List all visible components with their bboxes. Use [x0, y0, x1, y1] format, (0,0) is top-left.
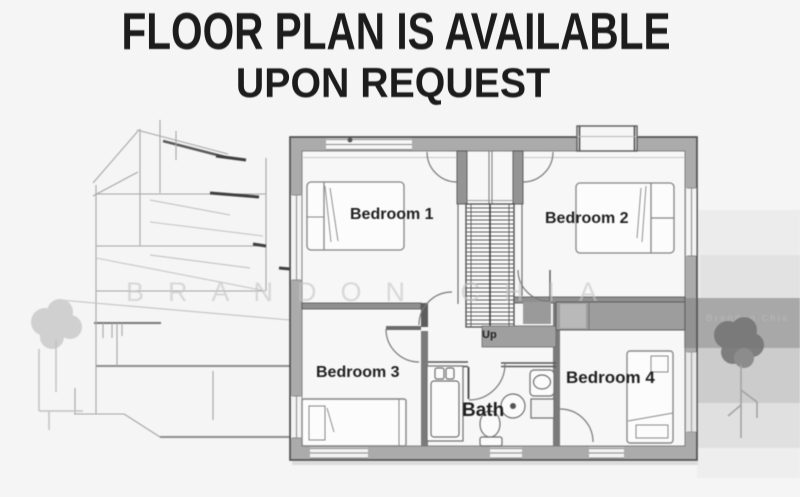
- svg-text:Bedroom 4: Bedroom 4: [566, 368, 655, 387]
- svg-text:Bath: Bath: [462, 400, 504, 421]
- svg-text:Up: Up: [482, 329, 497, 341]
- svg-text:Bedroom 3: Bedroom 3: [316, 364, 400, 381]
- svg-text:BRANDON CHIA: BRANDON CHIA: [126, 277, 621, 307]
- svg-text:Bedroom 1: Bedroom 1: [350, 206, 434, 223]
- svg-text:Bedroom 2: Bedroom 2: [545, 210, 629, 227]
